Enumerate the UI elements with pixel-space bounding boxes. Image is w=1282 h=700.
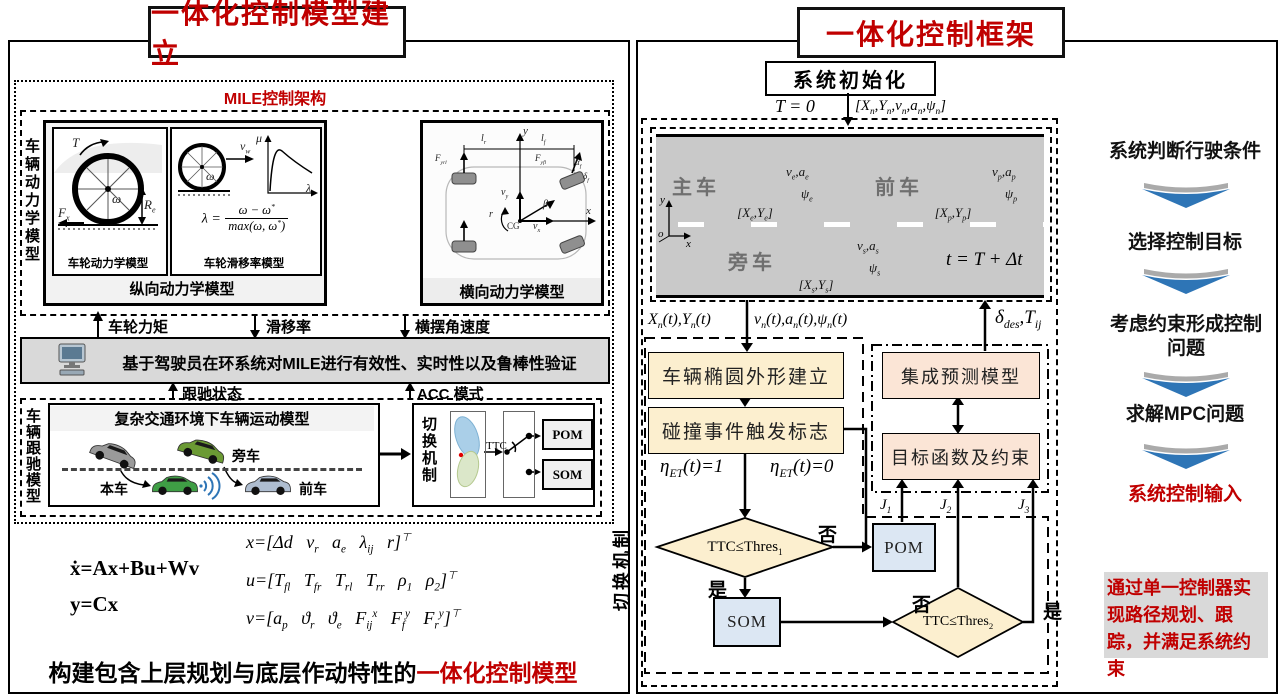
ttc-label: TTC	[486, 440, 507, 452]
longitudinal-label: 纵向动力学模型	[43, 278, 321, 299]
step-select-target: 选择控制目标	[1100, 231, 1270, 255]
j1-label: J1	[880, 497, 891, 514]
ellipse-shape-box: 车辆椭圆外形建立	[648, 352, 844, 399]
yes1-label: 是	[708, 575, 727, 602]
som-box: SOM	[713, 597, 781, 647]
slogan-black: 构建包含上层规划与底层作动特性的	[49, 660, 417, 686]
lateral-diagram	[424, 125, 598, 275]
down-chevron-icon	[1138, 266, 1234, 296]
slip-formula-numerator: ω − ω*	[225, 203, 288, 219]
ttc1-diamond-label: TTC≤Thres1	[675, 539, 815, 556]
down-chevron-icon	[1138, 441, 1234, 471]
lateral-lf-label: lf	[541, 133, 546, 144]
side-position: [Xs,Ys]	[786, 277, 846, 293]
slip-mu-symbol: μ	[256, 131, 262, 146]
ego-velocity-label: ve,ae	[786, 164, 809, 180]
mile-architecture-label: MILE控制架构	[160, 85, 390, 109]
lane-markings	[678, 222, 1044, 227]
slip-formula-fraction: ω − ω* max(ω, ω*)	[225, 203, 288, 234]
slogan-red: 一体化控制模型	[417, 660, 578, 686]
motion-signal: vn(t),an(t),ψn(t)	[754, 311, 847, 329]
prediction-model-box: 集成预测模型	[882, 352, 1040, 399]
t0-label: T = 0	[775, 96, 815, 117]
front-vehicle-label: 前车	[875, 171, 923, 200]
vehicle-dynamics-label: 车辆动力学模型	[24, 138, 39, 298]
ego-heading-label: ψe	[801, 186, 813, 202]
state-equation: ẋ=Ax+Bu+Wv	[70, 556, 199, 581]
lateral-cg-label: CG	[507, 221, 520, 231]
step-solve-mpc: 求解MPC问题	[1100, 403, 1270, 427]
road-axis-x: x	[686, 238, 691, 250]
scene-ego-label: 本车	[100, 479, 128, 499]
j2-label: J2	[940, 497, 951, 514]
lateral-y-label: y	[523, 125, 528, 137]
lateral-fyfl-label: Fyfl	[535, 153, 546, 163]
follow-state-label: 跟驰状态	[182, 383, 242, 404]
driving-simulator-icon	[58, 343, 88, 377]
yes2-label: 是	[1043, 597, 1062, 624]
road	[656, 134, 1044, 298]
scene-title: 复杂交通环境下车辆运动模型	[50, 406, 374, 431]
slide: 一体化控制模型建立 一体化控制框架 MILE控制架构 车辆动力学模型 纵向动力学…	[0, 0, 1282, 700]
step-judge-conditions: 系统判断行驶条件	[1100, 140, 1270, 164]
front-heading-label: ψp	[1005, 186, 1017, 202]
lateral-alphaf-label: αf	[575, 157, 581, 167]
slip-formula-denominator: max(ω, ω*)	[225, 219, 288, 234]
wheel-dynamics-diagram	[54, 129, 162, 247]
ego-position: [Xe,Ye]	[725, 205, 785, 221]
down-chevron-icon	[1138, 369, 1234, 399]
system-init-box: 系统初始化	[765, 61, 936, 96]
slip-omega-symbol: ω	[206, 169, 214, 184]
follow-model-label: 车辆跟驰模型	[25, 408, 40, 508]
input-vector-equation: u=[Tfl Tfr Trl Trr ρ1 ρ2]⊤	[246, 570, 457, 591]
front-velocity-label: vp,ap	[992, 164, 1016, 180]
output-equation: y=Cx	[70, 592, 118, 617]
signal-slip-rate: 滑移率	[266, 316, 311, 337]
lateral-box: y x lr lf Fyrl Fyfl CG β vx vy r αf δf 横…	[420, 120, 604, 306]
wheel-omega-symbol: ω	[112, 191, 121, 207]
lateral-vx-label: vx	[533, 221, 540, 232]
j3-label: J3	[1018, 497, 1029, 514]
validation-bar: 基于驾驶员在环系统对MILE进行有效性、实时性以及鲁棒性验证	[20, 337, 610, 384]
switching-mechanism-label: 切换机制	[608, 585, 634, 611]
side-velocity-label: vs,as	[857, 238, 879, 254]
signal-yaw-rate: 横摆角速度	[415, 316, 490, 337]
lateral-vy-label: vy	[501, 187, 508, 198]
pom-box-left: POM	[542, 419, 593, 450]
lateral-x-label: x	[586, 205, 591, 217]
right-panel-title: 一体化控制框架	[797, 7, 1065, 58]
slip-formula-lhs: λ =	[202, 212, 221, 227]
front-position: [Xp,Yp]	[923, 205, 983, 221]
step-control-input: 系统控制输入	[1100, 483, 1270, 507]
state-vector-equation: x=[Δd vr ae λij r]⊤	[246, 532, 411, 553]
slip-vw-symbol: vw	[240, 139, 250, 154]
lateral-lr-label: lr	[481, 133, 486, 144]
slip-model-subbox: vw ω μ λ λ = ω − ω* max(ω, ω*)	[170, 127, 322, 276]
switching-mechanism-label-wrap: 切换机制	[638, 575, 664, 665]
objective-box: 目标函数及约束	[882, 433, 1040, 480]
scene-front-label: 前车	[299, 479, 327, 499]
pom-box: POM	[872, 523, 936, 572]
left-slogan: 构建包含上层规划与底层作动特性的一体化控制模型	[20, 654, 606, 688]
road-axis-y: y	[660, 194, 665, 206]
eta-one-label: ηET(t)=1	[660, 456, 723, 478]
position-signal: Xn(t),Yn(t)	[648, 311, 711, 329]
no1-label: 否	[818, 520, 837, 547]
road-axis-o: o	[658, 228, 664, 240]
scene-lane-line	[62, 468, 362, 471]
lateral-label: 横向动力学模型	[423, 281, 601, 302]
eta-zero-label: ηET(t)=0	[770, 456, 833, 478]
single-controller-note: 通过单一控制器实现路径规划、跟踪，并满足系统约束	[1104, 572, 1268, 658]
lateral-beta-label: β	[543, 199, 548, 210]
ego-vehicle-label: 主车	[672, 171, 720, 200]
scene-side-label: 旁车	[232, 446, 260, 466]
side-heading-label: ψs	[869, 260, 880, 276]
switch-box-label: 切换机制	[421, 416, 436, 496]
validation-text: 基于驾驶员在环系统对MILE进行有效性、实时性以及鲁棒性验证	[97, 350, 602, 374]
wheel-re-symbol: Re	[144, 197, 156, 213]
switch-ellipse-panel	[450, 411, 486, 498]
acc-mode-label: ACC 模式	[417, 383, 484, 404]
init-vector-label: [Xn,Yn,vn,an,ψn]	[855, 98, 946, 115]
left-panel-title: 一体化控制模型建立	[148, 6, 406, 58]
slip-formula: λ = ω − ω* max(ω, ω*)	[172, 203, 318, 234]
wheel-dynamics-subbox: T ω Fx Re	[52, 127, 168, 276]
wheel-torque-symbol: T	[72, 135, 79, 151]
slip-model-caption: 车轮滑移率模型	[170, 255, 318, 271]
wheel-dynamics-caption: 车轮动力学模型	[52, 255, 164, 271]
slip-lambda-symbol: λ	[306, 181, 311, 196]
step-form-problem: 考虑约束形成控制问题	[1101, 313, 1271, 361]
switch-lever-panel	[503, 411, 535, 498]
lateral-fyrl-label: Fyrl	[435, 153, 447, 163]
lateral-r-label: r	[489, 209, 493, 220]
som-box-left: SOM	[542, 459, 593, 490]
signal-wheel-torque: 车轮力矩	[108, 316, 168, 337]
down-chevron-icon	[1138, 180, 1234, 210]
no2-label: 否	[912, 590, 931, 617]
lateral-deltaf-label: δf	[583, 171, 589, 181]
side-vehicle-label: 旁车	[728, 246, 776, 275]
control-signal: δdes,Tij	[995, 307, 1041, 329]
time-update-label: t = T + Δt	[946, 249, 1023, 271]
wheel-fx-symbol: Fx	[58, 205, 70, 221]
collision-trigger-box: 碰撞事件触发标志	[648, 407, 844, 454]
disturbance-vector-equation: v=[ap ϑr ϑe Fijx Ffy Fry]⊤	[246, 608, 460, 629]
